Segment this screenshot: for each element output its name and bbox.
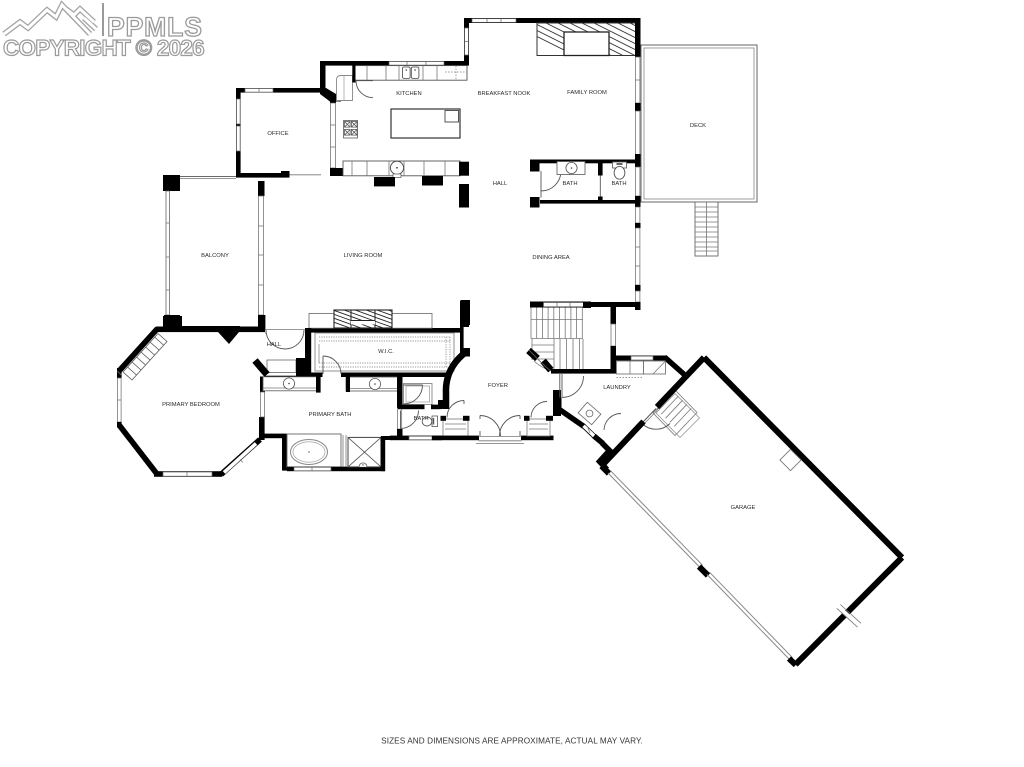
svg-text:BATH: BATH xyxy=(413,416,428,422)
svg-text:HALL: HALL xyxy=(493,181,508,187)
svg-text:KITCHEN: KITCHEN xyxy=(396,91,421,97)
svg-text:BALCONY: BALCONY xyxy=(201,253,229,259)
svg-text:BATH: BATH xyxy=(562,181,577,187)
svg-text:W.I.C.: W.I.C. xyxy=(378,349,394,355)
svg-text:COPYRIGHT © 2026: COPYRIGHT © 2026 xyxy=(3,36,204,61)
svg-text:LIVING ROOM: LIVING ROOM xyxy=(344,253,383,259)
svg-text:FOYER: FOYER xyxy=(488,383,508,389)
svg-text:DECK: DECK xyxy=(690,123,706,129)
svg-text:DINING AREA: DINING AREA xyxy=(532,255,569,261)
svg-text:PRIMARY BEDROOM: PRIMARY BEDROOM xyxy=(162,402,220,408)
svg-text:SIZES AND DIMENSIONS ARE APPRO: SIZES AND DIMENSIONS ARE APPROXIMATE, AC… xyxy=(381,737,643,746)
svg-text:BREAKFAST NOOK: BREAKFAST NOOK xyxy=(478,91,531,97)
svg-text:FAMILY ROOM: FAMILY ROOM xyxy=(567,90,607,96)
svg-text:OFFICE: OFFICE xyxy=(267,131,288,137)
svg-text:LAUNDRY: LAUNDRY xyxy=(603,385,631,391)
svg-text:HALL: HALL xyxy=(267,342,282,348)
svg-text:GARAGE: GARAGE xyxy=(731,505,756,511)
svg-text:BATH: BATH xyxy=(611,181,626,187)
svg-text:PRIMARY BATH: PRIMARY BATH xyxy=(309,412,352,418)
